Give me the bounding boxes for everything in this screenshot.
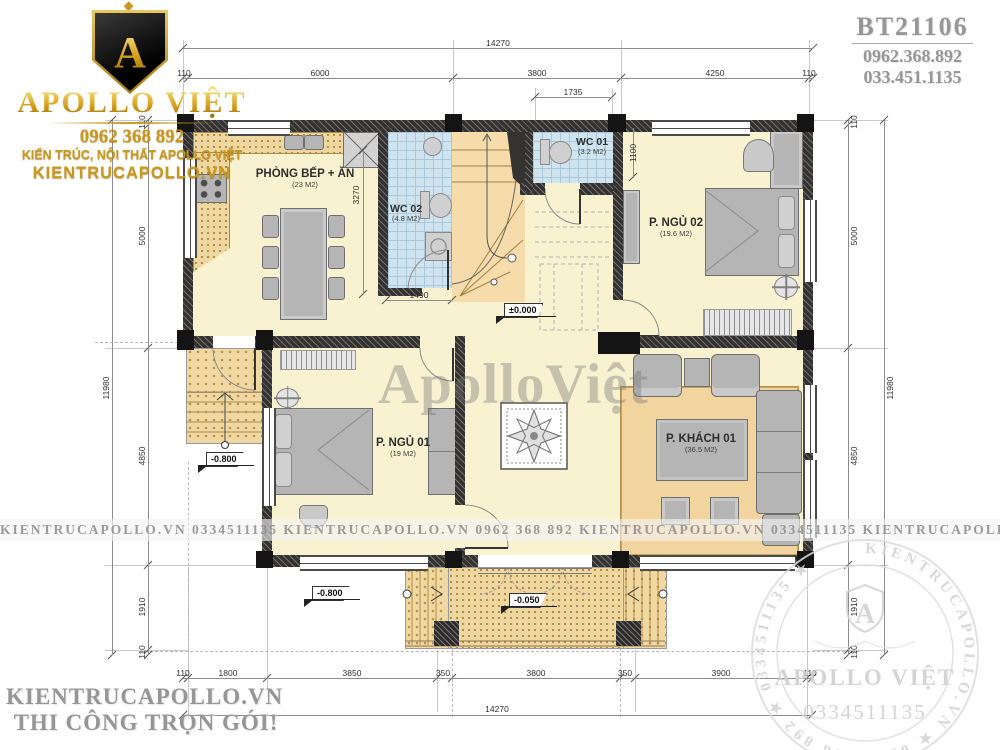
room-label-kitchen: PHÒNG BẾP + ĂN (23 M2): [245, 168, 365, 190]
dim-bottom-3900: 3900: [691, 668, 751, 678]
contact-phone-1: 0962.368.892: [835, 46, 990, 67]
porch-walk-start: [403, 590, 411, 598]
column: [445, 114, 462, 132]
dim-top-total: 14270: [458, 38, 538, 48]
footer-website: KIENTRUCAPOLLO.VN: [6, 684, 286, 710]
dim-left-4850: 4850: [137, 426, 147, 486]
dim-bottom-1800: 1800: [198, 668, 258, 678]
dim-top-6000: 6000: [290, 68, 350, 78]
dim-line: [148, 120, 149, 655]
dim-bottom-3850: 3850: [322, 668, 382, 678]
bed-fold: [318, 410, 369, 490]
level-tag-marker: [496, 317, 505, 324]
room-label-living: P. KHÁCH 01 (36.5 M2): [658, 433, 744, 455]
column: [177, 330, 194, 350]
stair-newel: [508, 254, 516, 262]
room-area: (36.5 M2): [658, 446, 744, 455]
column: [256, 330, 273, 350]
dim-line: [183, 78, 813, 79]
dim-line: [535, 97, 612, 98]
window-bed2-right: [803, 200, 817, 282]
footer-block: KIENTRUCAPOLLO.VN THI CÔNG TRỌN GÓI!: [6, 684, 286, 736]
wall-stair-wc01: [525, 132, 533, 192]
dim-bottom-3800: 3800: [506, 668, 566, 678]
window-bed1-bottom: [300, 555, 428, 571]
room-area: (4.8 M2): [378, 215, 434, 224]
entrance-threshold: [478, 568, 592, 569]
room-label-wc02: WC 02 (4.8 M2): [378, 203, 434, 224]
footer-slogan: THI CÔNG TRỌN GÓI!: [6, 710, 286, 736]
room-area: (23 M2): [245, 181, 365, 190]
seal-phone: 0334511135: [803, 700, 926, 724]
room-area: (19.6 M2): [638, 230, 714, 239]
column: [608, 114, 626, 132]
porch-column: [616, 621, 641, 646]
seal-monogram: A: [855, 599, 876, 630]
room-label-bed1: P. NGỦ 01 (19 M2): [365, 437, 441, 459]
column: [797, 114, 814, 132]
dim-left-110b: 110: [137, 622, 147, 682]
brand-logo: ◆ A APOLLO VIỆT 0962 368 892 KIẾN TRÚC, …: [2, 2, 262, 182]
level-tag-marker: [198, 466, 207, 473]
dim-bottom-350a: 350: [428, 668, 458, 678]
dim-left-total: 11980: [101, 358, 111, 418]
logo-tagline: KIẾN TRÚC, NỘI THẤT APOLLO VIỆT: [0, 148, 272, 162]
dim-line: [183, 48, 813, 49]
side-stair-start: [222, 442, 229, 449]
column: [612, 551, 629, 568]
window-living-right-1: [803, 385, 817, 453]
dim-line: [183, 678, 812, 679]
wall-mid-d: [613, 336, 813, 348]
dim-line: [363, 150, 364, 294]
porch-walk-start: [659, 590, 667, 598]
dim-line: [386, 300, 452, 301]
dim-bottom-110a: 110: [171, 668, 195, 678]
shield-inner: A: [95, 13, 165, 91]
logo-phone: 0962 368 892: [2, 126, 262, 148]
side-stair-treads: [186, 392, 262, 432]
level-tag-line: [496, 316, 556, 317]
dim-top-3800: 3800: [507, 68, 567, 78]
dim-kitchen-3270: 3270: [351, 165, 361, 225]
logo-monogram: A: [114, 27, 146, 78]
seal-brand: APOLLO VIỆT: [775, 665, 956, 690]
column: [256, 551, 273, 568]
window-bed2-top: [652, 120, 750, 136]
watermark-seal: KIENTRUCAPOLLO.VN ★ 0962 368 892 ★ 03345…: [745, 533, 985, 750]
plan-code-block: BT21106 0962.368.892 033.451.1135: [835, 12, 990, 88]
contact-phone-2: 033.451.1135: [835, 67, 990, 88]
room-area: (19 M2): [365, 450, 441, 459]
porch-folding-door: [480, 567, 590, 594]
level-tag-marker: [304, 600, 313, 607]
room-area: (3.2 M2): [566, 148, 618, 157]
dim-right-110a: 110: [849, 92, 859, 152]
dim-right-5000: 5000: [849, 206, 859, 266]
dim-top-1735: 1735: [543, 87, 603, 97]
side-stair-arrow: [217, 393, 233, 442]
stair-newel: [491, 279, 497, 285]
room-label-bed2: P. NGỦ 02 (19.6 M2): [638, 217, 714, 239]
wall-wc01-b: [580, 183, 613, 195]
plan-code: BT21106: [852, 12, 972, 44]
room-label-wc01: WC 01 (3.2 M2): [566, 136, 618, 157]
wall-mid-c: [455, 336, 465, 348]
dim-top-110b: 110: [797, 68, 821, 78]
dim-bottom-350b: 350: [610, 668, 640, 678]
dim-right-4850: 4850: [849, 426, 859, 486]
wall-mid-b: [255, 336, 420, 348]
logo-flourish: [47, 122, 217, 124]
window-bed1-left: [262, 408, 276, 506]
upper-floor-projection: [535, 212, 611, 330]
dim-top-4250: 4250: [685, 68, 745, 78]
dim-line: [112, 120, 113, 655]
level-tag-marker: [501, 607, 510, 614]
dim-left-5000: 5000: [137, 206, 147, 266]
column: [598, 332, 640, 354]
dim-wc02-1490: 1490: [386, 290, 452, 300]
column: [445, 551, 462, 568]
entrance-threshold: [478, 573, 592, 574]
floor-plan-sheet: PHÒNG BẾP + ĂN (23 M2) WC 02 (4.8 M2) WC…: [0, 0, 1000, 750]
dim-bottom-total: 14270: [457, 704, 537, 714]
dim-right-total: 11980: [885, 358, 895, 418]
column: [797, 330, 814, 350]
dim-bed2-1100: 1100: [628, 123, 638, 183]
watermark-center: ApolloViệt: [378, 352, 649, 417]
porch-column: [434, 621, 459, 646]
logo-website: KIENTRUCAPOLLO.VN: [2, 164, 262, 183]
